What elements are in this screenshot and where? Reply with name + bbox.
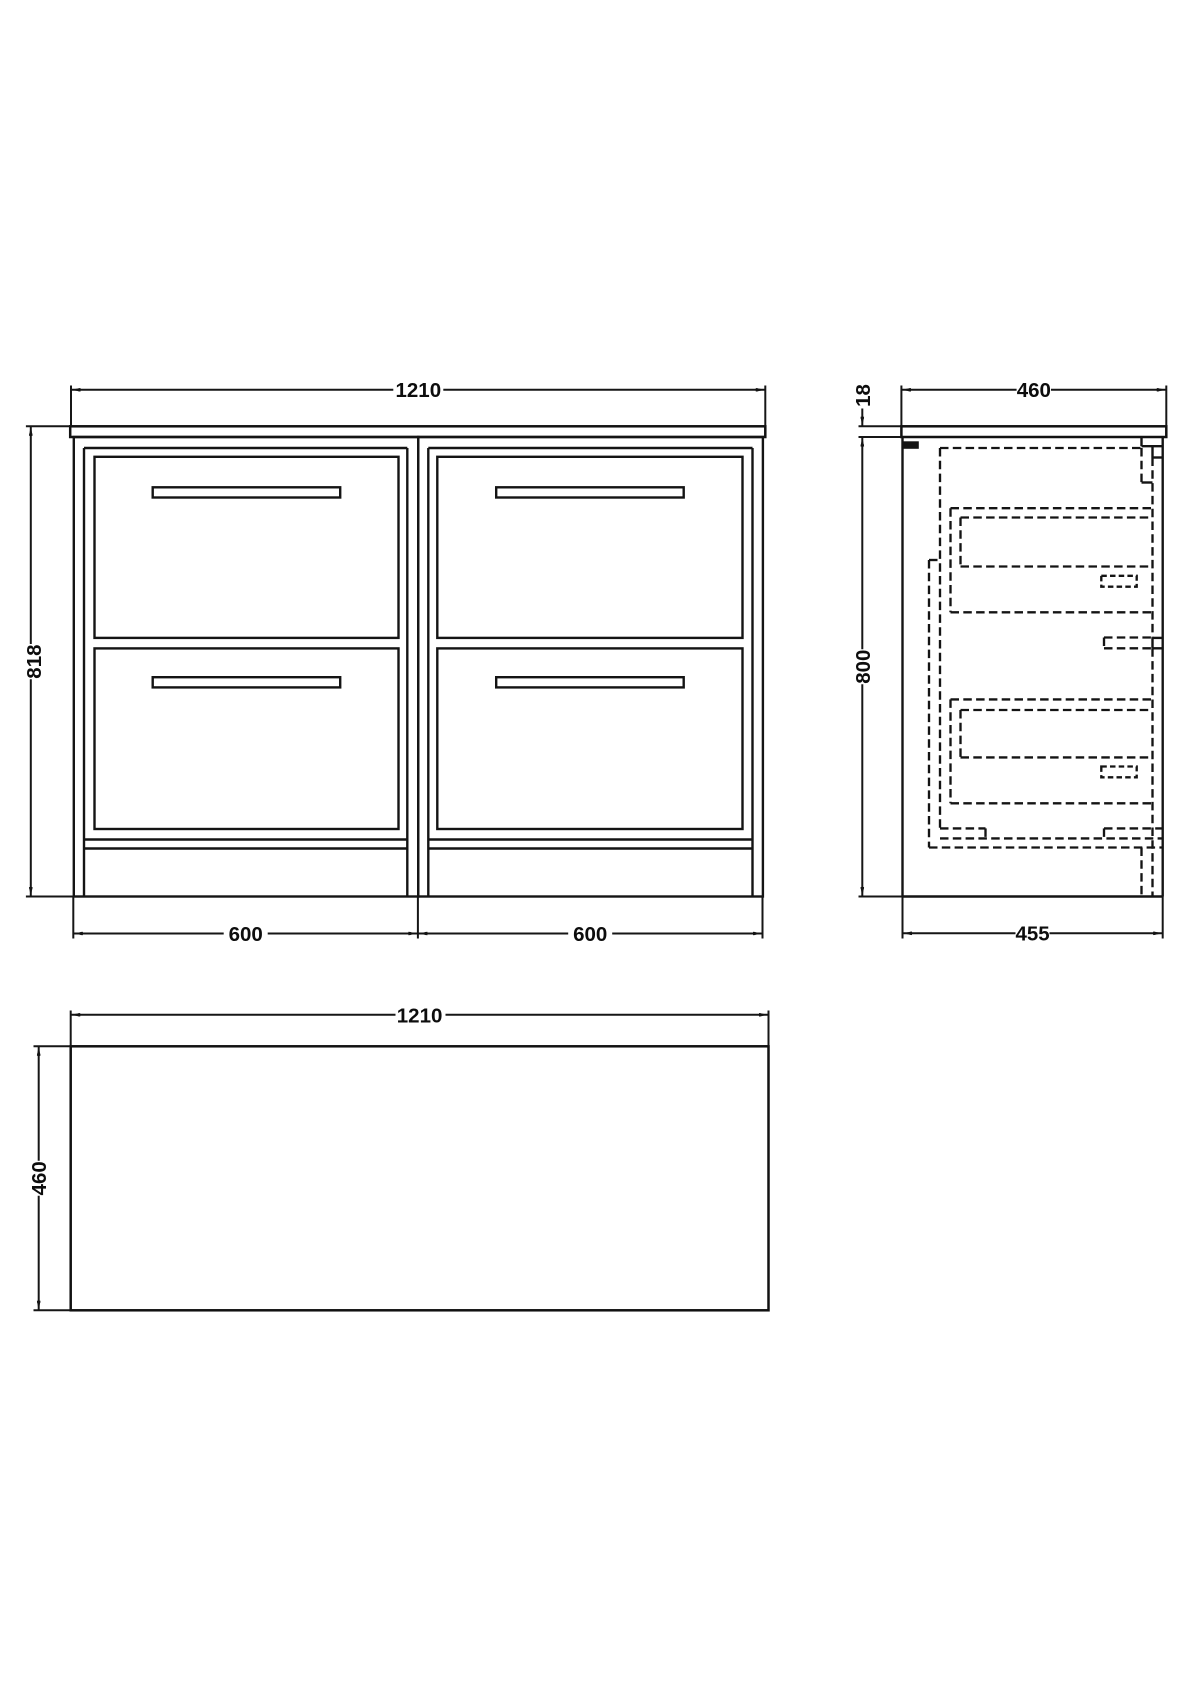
svg-text:18: 18: [852, 384, 875, 407]
svg-text:800: 800: [852, 650, 875, 684]
svg-text:600: 600: [573, 923, 607, 946]
svg-text:600: 600: [229, 923, 263, 946]
svg-text:460: 460: [1017, 379, 1051, 402]
svg-text:818: 818: [23, 644, 46, 678]
svg-text:1210: 1210: [397, 1004, 443, 1027]
svg-text:455: 455: [1015, 923, 1049, 946]
svg-text:460: 460: [28, 1161, 51, 1195]
svg-text:1210: 1210: [395, 379, 441, 402]
